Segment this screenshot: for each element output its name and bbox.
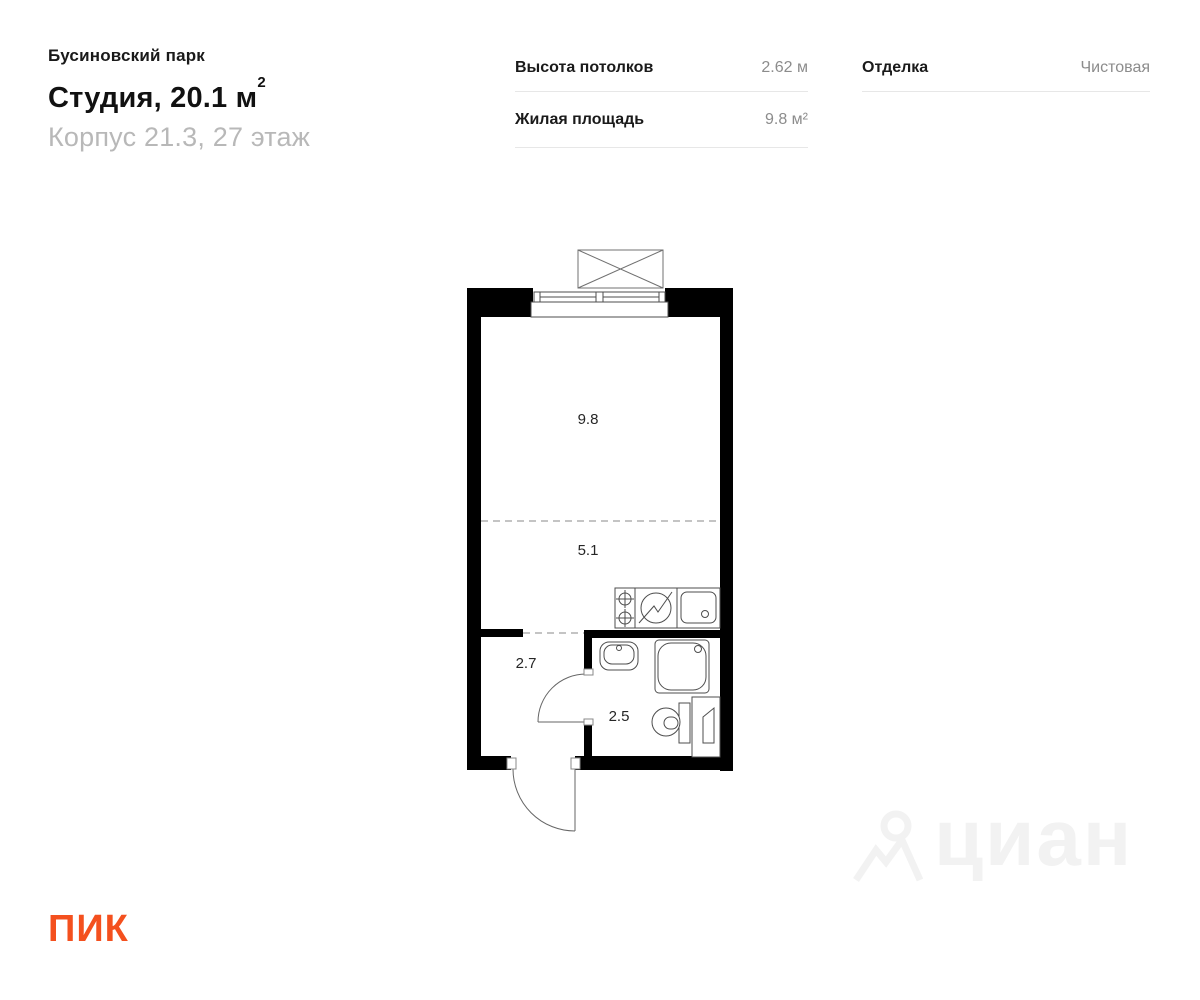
shower-icon: [655, 640, 709, 693]
watermark: циан: [852, 798, 1133, 884]
project-name: Бусиновский парк: [48, 46, 310, 66]
kitchen-unit-icon: [615, 588, 720, 628]
room-area-label-bathroom: 2.5: [609, 708, 630, 725]
apartment-card: Бусиновский парк Студия, 20.1 м2 Корпус …: [0, 0, 1200, 1000]
square-meter-sup: 2: [257, 74, 266, 91]
title-block: Бусиновский парк Студия, 20.1 м2 Корпус …: [48, 46, 310, 153]
toilet-icon: [652, 703, 690, 743]
spec-finish: Отделка Чистовая: [862, 44, 1150, 92]
floor-plan: 9.8 5.1 2.7 2.5: [440, 230, 760, 850]
room-area-label-living: 9.8: [578, 411, 599, 428]
specs-list: Высота потолков 2.62 м Жилая площадь 9.8…: [515, 44, 808, 148]
window-icon: [531, 292, 668, 317]
room-labels: 9.8 5.1 2.7 2.5: [516, 411, 630, 725]
watermark-text: циан: [934, 798, 1133, 878]
spec-label: Жилая площадь: [515, 111, 644, 129]
vent-shaft-icon: [692, 697, 720, 757]
spec-living-area: Жилая площадь 9.8 м²: [515, 92, 808, 148]
spec-label: Отделка: [862, 59, 928, 77]
balcony-icon: [578, 250, 663, 288]
entrance-door: [507, 758, 580, 831]
apartment-title: Студия, 20.1 м2: [48, 82, 310, 115]
room-area-label-hallway: 2.7: [516, 655, 537, 672]
cian-watermark-icon: [852, 798, 926, 884]
spec-value: Чистовая: [1080, 59, 1150, 77]
spec-value: 9.8 м²: [765, 111, 808, 129]
bathroom-door: [538, 669, 593, 725]
finish-info: Отделка Чистовая: [862, 44, 1150, 92]
room-area-label-kitchen: 5.1: [578, 542, 599, 559]
bath-sink-icon: [600, 642, 638, 670]
spec-label: Высота потолков: [515, 59, 653, 77]
apartment-title-text: Студия, 20.1 м: [48, 82, 257, 114]
pik-logo[interactable]: ПИК: [48, 908, 129, 951]
spec-value: 2.62 м: [761, 59, 808, 77]
apartment-subtitle: Корпус 21.3, 27 этаж: [48, 122, 310, 153]
spec-ceiling-height: Высота потолков 2.62 м: [515, 44, 808, 92]
